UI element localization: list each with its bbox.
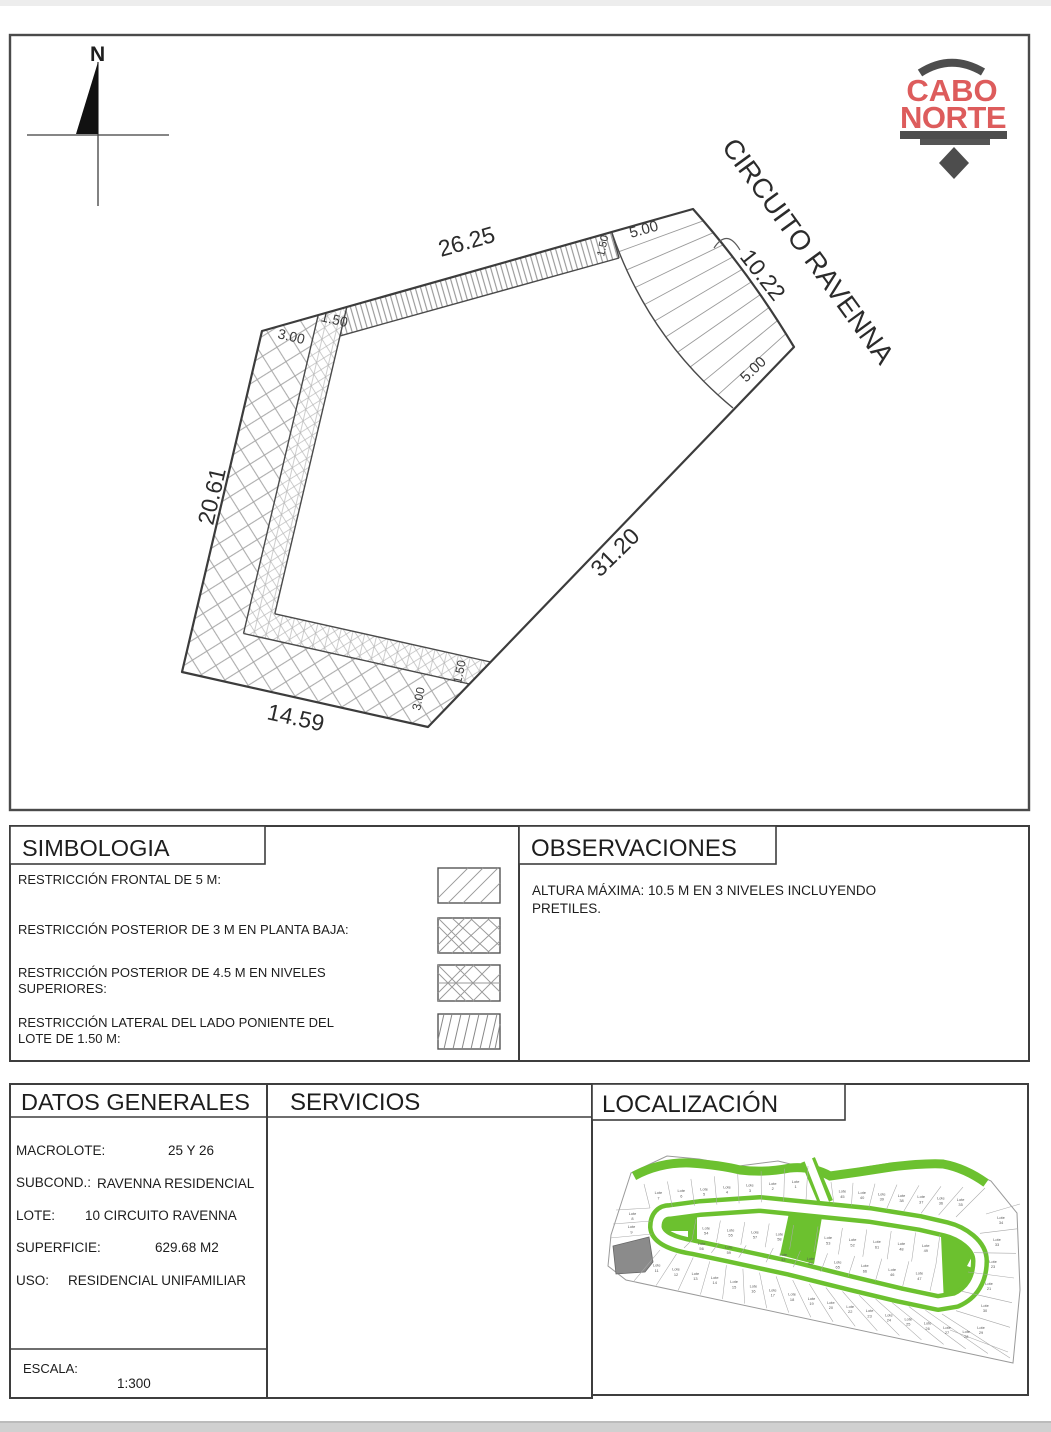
- svg-text:65: 65: [836, 1265, 840, 1270]
- svg-text:LOCALIZACIÓN: LOCALIZACIÓN: [602, 1091, 778, 1118]
- svg-text:RESTRICCIÓN FRONTAL DE 5 M:: RESTRICCIÓN FRONTAL DE 5 M:: [18, 872, 221, 887]
- svg-text:RAVENNA RESIDENCIAL: RAVENNA RESIDENCIAL: [97, 1176, 255, 1191]
- svg-text:OBSERVACIONES: OBSERVACIONES: [531, 835, 737, 862]
- svg-text:39: 39: [880, 1197, 884, 1202]
- svg-text:5: 5: [703, 1192, 705, 1197]
- svg-text:23: 23: [867, 1313, 871, 1318]
- svg-text:9: 9: [630, 1230, 632, 1235]
- svg-text:56: 56: [699, 1246, 703, 1251]
- svg-text:16: 16: [751, 1289, 755, 1294]
- svg-text:19: 19: [809, 1301, 813, 1306]
- svg-text:7: 7: [657, 1195, 659, 1200]
- svg-text:45: 45: [840, 1194, 844, 1199]
- svg-text:MACROLOTE:: MACROLOTE:: [16, 1143, 105, 1158]
- svg-text:63: 63: [808, 1261, 812, 1266]
- svg-text:RESIDENCIAL UNIFAMILIAR: RESIDENCIAL UNIFAMILIAR: [68, 1273, 246, 1288]
- svg-text:6: 6: [680, 1193, 682, 1198]
- svg-text:55: 55: [728, 1233, 732, 1238]
- svg-text:53: 53: [826, 1240, 830, 1245]
- svg-text:Lote: Lote: [628, 1224, 636, 1229]
- svg-text:8: 8: [631, 1216, 633, 1221]
- svg-text:48: 48: [899, 1246, 903, 1251]
- svg-text:52: 52: [850, 1242, 854, 1247]
- svg-text:26: 26: [925, 1326, 929, 1331]
- svg-text:PRETILES.: PRETILES.: [532, 901, 601, 916]
- svg-text:25: 25: [906, 1322, 910, 1327]
- svg-text:SUPERIORES:: SUPERIORES:: [18, 981, 107, 996]
- svg-text:43: 43: [781, 1257, 785, 1262]
- svg-text:57: 57: [753, 1235, 757, 1240]
- svg-text:ESCALA:: ESCALA:: [23, 1361, 78, 1376]
- svg-text:37: 37: [919, 1199, 923, 1204]
- svg-text:2: 2: [772, 1186, 774, 1191]
- svg-text:23: 23: [991, 1264, 995, 1269]
- svg-text:35: 35: [958, 1202, 962, 1207]
- svg-text:SERVICIOS: SERVICIOS: [290, 1089, 420, 1116]
- svg-text:21: 21: [987, 1286, 991, 1291]
- svg-text:RESTRICCIÓN POSTERIOR DE 4.5 M: RESTRICCIÓN POSTERIOR DE 4.5 M EN NIVELE…: [18, 965, 326, 980]
- svg-text:28: 28: [964, 1334, 968, 1339]
- svg-text:46: 46: [890, 1272, 894, 1277]
- svg-text:58: 58: [777, 1237, 781, 1242]
- svg-text:11: 11: [655, 1268, 659, 1273]
- svg-text:RESTRICCIÓN LATERAL DEL LADO P: RESTRICCIÓN LATERAL DEL LADO PONIENTE DE…: [18, 1015, 334, 1030]
- svg-text:17: 17: [771, 1293, 775, 1298]
- svg-text:61: 61: [875, 1244, 879, 1249]
- svg-text:LOTE:: LOTE:: [16, 1208, 55, 1223]
- svg-text:15: 15: [732, 1284, 736, 1289]
- svg-text:27: 27: [945, 1330, 949, 1335]
- svg-text:3: 3: [749, 1188, 751, 1193]
- svg-text:38: 38: [899, 1198, 903, 1203]
- svg-text:LOTE DE 1.50 M:: LOTE DE 1.50 M:: [18, 1031, 121, 1046]
- svg-text:13: 13: [693, 1276, 697, 1281]
- svg-text:SIMBOLOGIA: SIMBOLOGIA: [22, 835, 170, 861]
- svg-text:ALTURA MÁXIMA: 10.5 M EN 3 NIV: ALTURA MÁXIMA: 10.5 M EN 3 NIVELES INCLU…: [532, 883, 876, 898]
- svg-text:RESTRICCIÓN POSTERIOR DE 3 M E: RESTRICCIÓN POSTERIOR DE 3 M EN PLANTA B…: [18, 922, 349, 937]
- svg-text:25 Y 26: 25 Y 26: [168, 1143, 214, 1158]
- svg-text:DATOS GENERALES: DATOS GENERALES: [21, 1089, 250, 1115]
- svg-text:33: 33: [995, 1242, 999, 1247]
- svg-text:1:300: 1:300: [117, 1376, 151, 1391]
- svg-text:47: 47: [917, 1276, 921, 1281]
- svg-text:629.68 M2: 629.68 M2: [155, 1240, 219, 1255]
- svg-text:36: 36: [939, 1201, 943, 1206]
- svg-text:NORTE: NORTE: [900, 100, 1006, 135]
- svg-text:SUPERFICIE:: SUPERFICIE:: [16, 1240, 101, 1255]
- svg-text:66: 66: [863, 1268, 867, 1273]
- svg-text:1: 1: [795, 1184, 797, 1189]
- svg-text:10 CIRCUITO RAVENNA: 10 CIRCUITO RAVENNA: [85, 1208, 237, 1223]
- svg-text:59: 59: [727, 1250, 731, 1255]
- svg-text:SUBCOND.:: SUBCOND.:: [16, 1175, 91, 1190]
- svg-text:USO:: USO:: [16, 1273, 49, 1288]
- svg-text:22: 22: [848, 1309, 852, 1314]
- svg-text:49: 49: [924, 1248, 928, 1253]
- svg-text:12: 12: [674, 1272, 678, 1277]
- svg-text:18: 18: [790, 1297, 794, 1302]
- svg-text:29: 29: [979, 1330, 983, 1335]
